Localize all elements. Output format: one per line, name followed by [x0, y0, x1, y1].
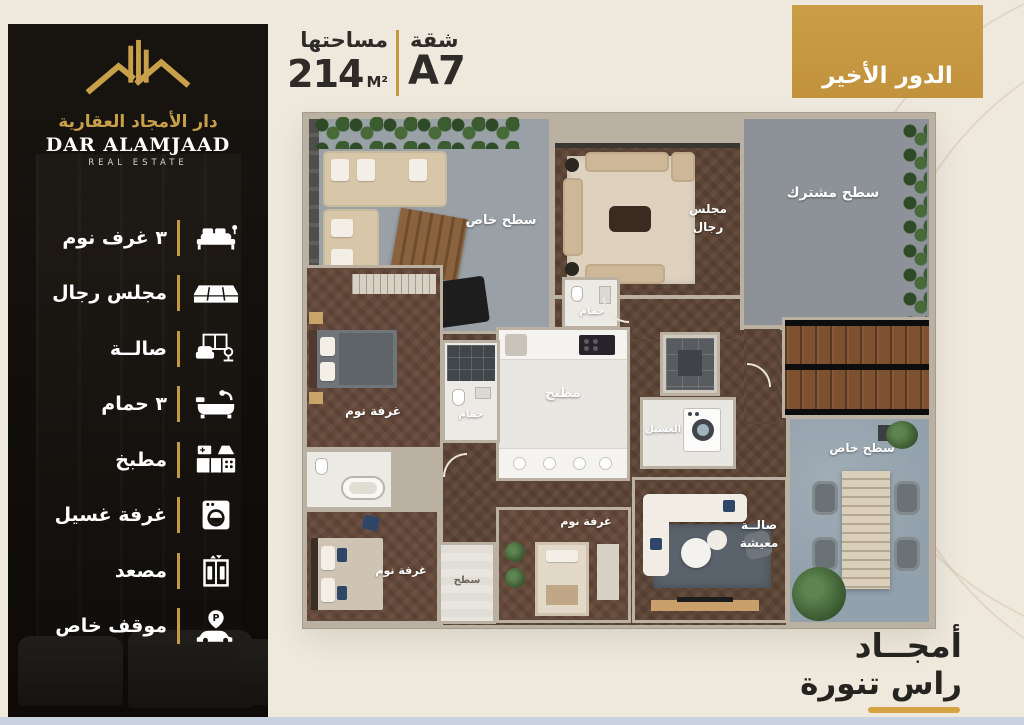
nightstand: [309, 312, 323, 324]
bathtub-icon: [190, 387, 242, 421]
toilet: [315, 458, 328, 475]
logo-subtitle: REAL ESTATE: [8, 158, 268, 168]
room-label: صالــة معيشة: [735, 516, 783, 552]
canopy-bed: [535, 542, 589, 616]
area-value: 214M²: [262, 52, 388, 96]
sink: [475, 387, 491, 399]
plant: [505, 568, 525, 588]
logo-building-icon: [79, 38, 197, 104]
feature-label: مطبخ: [115, 449, 167, 471]
gold-divider: [177, 497, 180, 533]
dining-chair: [894, 481, 920, 515]
living-room-icon: [190, 332, 242, 366]
apartment-number: A7: [408, 48, 465, 94]
room-small-terrace: سطح: [441, 545, 493, 621]
feature-list: ٣ غرف نوم مجلس رجال: [8, 210, 268, 654]
gold-divider: [177, 331, 180, 367]
room-label: مطبخ: [533, 386, 593, 401]
room-label: غرفة نوم: [369, 564, 433, 577]
feature-label: موقف خاص: [55, 615, 167, 637]
elevator-icon: [190, 554, 242, 588]
side-table: [565, 158, 579, 172]
majlis-sofa: [585, 152, 669, 172]
parking-icon: P: [190, 609, 242, 643]
gold-divider: [177, 442, 180, 478]
gold-divider: [177, 386, 180, 422]
ottoman: [362, 514, 381, 531]
dining-chair: [812, 537, 838, 571]
feature-label: ٣ غرف نوم: [62, 227, 167, 249]
nightstand: [309, 392, 323, 404]
room-bathroom-left: [307, 452, 391, 507]
side-table: [565, 262, 579, 276]
room-bedroom-left: غرفة نوم: [307, 512, 437, 621]
room-label: سطح خاص: [824, 441, 900, 455]
hedge-row: [315, 117, 520, 149]
footer-brand-line2: راس تنورة: [800, 666, 962, 702]
feature-label: مصعد: [115, 560, 167, 582]
room-label: حمام: [577, 306, 607, 317]
room-label: مجلس رجال: [683, 200, 733, 236]
bed: [309, 330, 397, 388]
dresser: [597, 544, 619, 600]
feature-majlis: مجلس رجال: [8, 266, 268, 322]
dining-chair: [894, 537, 920, 571]
room-bedroom-master: غرفة نوم: [307, 268, 440, 447]
sectional-sofa-icon: [190, 276, 242, 310]
kitchen-cabinet: [505, 334, 527, 356]
feature-bedrooms: ٣ غرف نوم: [8, 210, 268, 266]
room-label: سطح: [449, 575, 485, 586]
feature-elevator: مصعد: [8, 543, 268, 599]
logo: دار الأمجاد العقارية DAR ALAMJAAD REAL E…: [8, 38, 268, 168]
logo-title-arabic: دار الأمجاد العقارية: [8, 112, 268, 132]
elevator-cab: [678, 350, 702, 376]
feature-label: مجلس رجال: [52, 282, 167, 304]
majlis-coffee-table: [609, 206, 651, 232]
washing-machine: [683, 408, 721, 452]
room-bedroom-middle: غرفة نوم: [499, 510, 628, 620]
room-bathroom-middle: حمام: [445, 343, 497, 440]
elevator-shaft: [663, 335, 717, 393]
room-private-terrace-right: سطح خاص: [790, 419, 929, 622]
logo-title-english: DAR ALAMJAAD: [8, 134, 268, 156]
sidebar: دار الأمجاد العقارية DAR ALAMJAAD REAL E…: [8, 24, 268, 718]
header-gold-divider: [396, 30, 399, 96]
washing-machine-icon: [190, 498, 242, 532]
footer-brand-line1: أمجــاد: [855, 626, 962, 665]
kitchen-counter: [499, 448, 627, 478]
footer-gold-underline: [868, 707, 960, 713]
shower: [447, 345, 495, 381]
toilet: [452, 389, 465, 406]
room-living: صالــة معيشة: [635, 480, 785, 620]
floor-badge-text: الدور الأخير: [822, 63, 953, 89]
feature-label: ٣ حمام: [101, 393, 167, 415]
room-majlis: مجلس رجال: [555, 143, 740, 295]
floor-badge: الدور الأخير: [792, 5, 983, 98]
wardrobe: [352, 274, 436, 294]
majlis-sofa: [563, 178, 583, 256]
bathtub: [341, 476, 385, 500]
tv: [677, 597, 733, 602]
kitchen-icon: [190, 443, 242, 477]
feature-parking: موقف خاص P: [8, 599, 268, 655]
gold-divider: [177, 275, 180, 311]
room-label: غرفة نوم: [335, 404, 411, 418]
plant: [505, 542, 525, 562]
toilet: [571, 286, 583, 302]
plant: [792, 567, 846, 621]
feature-bathrooms: ٣ حمام: [8, 377, 268, 433]
flyer-canvas: دار الأمجاد العقارية DAR ALAMJAAD REAL E…: [0, 0, 1024, 725]
room-label: سطح خاص: [459, 213, 543, 228]
room-kitchen: مطبخ: [499, 330, 627, 478]
gold-divider: [177, 553, 180, 589]
feature-kitchen: مطبخ: [8, 432, 268, 488]
feature-label: صالــة: [110, 338, 167, 360]
feature-hall: صالــة: [8, 321, 268, 377]
room-laundry: الغسيل: [643, 400, 733, 466]
floor-plan: سطح خاص سطح مشترك مجلس رجال: [303, 113, 935, 628]
gold-divider: [177, 608, 180, 644]
feature-label: غرفة غسيل: [55, 504, 167, 526]
bottom-edge-strip: [0, 717, 1024, 725]
dining-chair: [812, 481, 838, 515]
coffee-table: [707, 530, 727, 550]
kitchen-counter: [499, 330, 627, 360]
hedge-column: [903, 123, 927, 321]
feature-laundry: غرفة غسيل: [8, 488, 268, 544]
room-label: سطح مشترك: [778, 185, 888, 201]
staircase: [785, 320, 929, 415]
exercise-equipment: [432, 276, 490, 329]
bed-icon: [190, 221, 242, 255]
majlis-armchair: [671, 152, 695, 182]
cooktop: [579, 335, 615, 355]
outdoor-sofa: [323, 151, 447, 207]
dining-table: [842, 471, 890, 589]
room-label: الغسيل: [645, 424, 681, 435]
area-number: 214: [287, 52, 363, 96]
living-sofa: [643, 494, 669, 576]
area-unit: M²: [367, 73, 389, 91]
gold-divider: [177, 220, 180, 256]
room-shared-terrace: سطح مشترك: [744, 119, 929, 325]
parking-letter: P: [212, 613, 219, 624]
room-label: حمام: [453, 409, 489, 420]
room-label: غرفة نوم: [551, 515, 621, 528]
area-label: مساحتها: [282, 28, 388, 52]
